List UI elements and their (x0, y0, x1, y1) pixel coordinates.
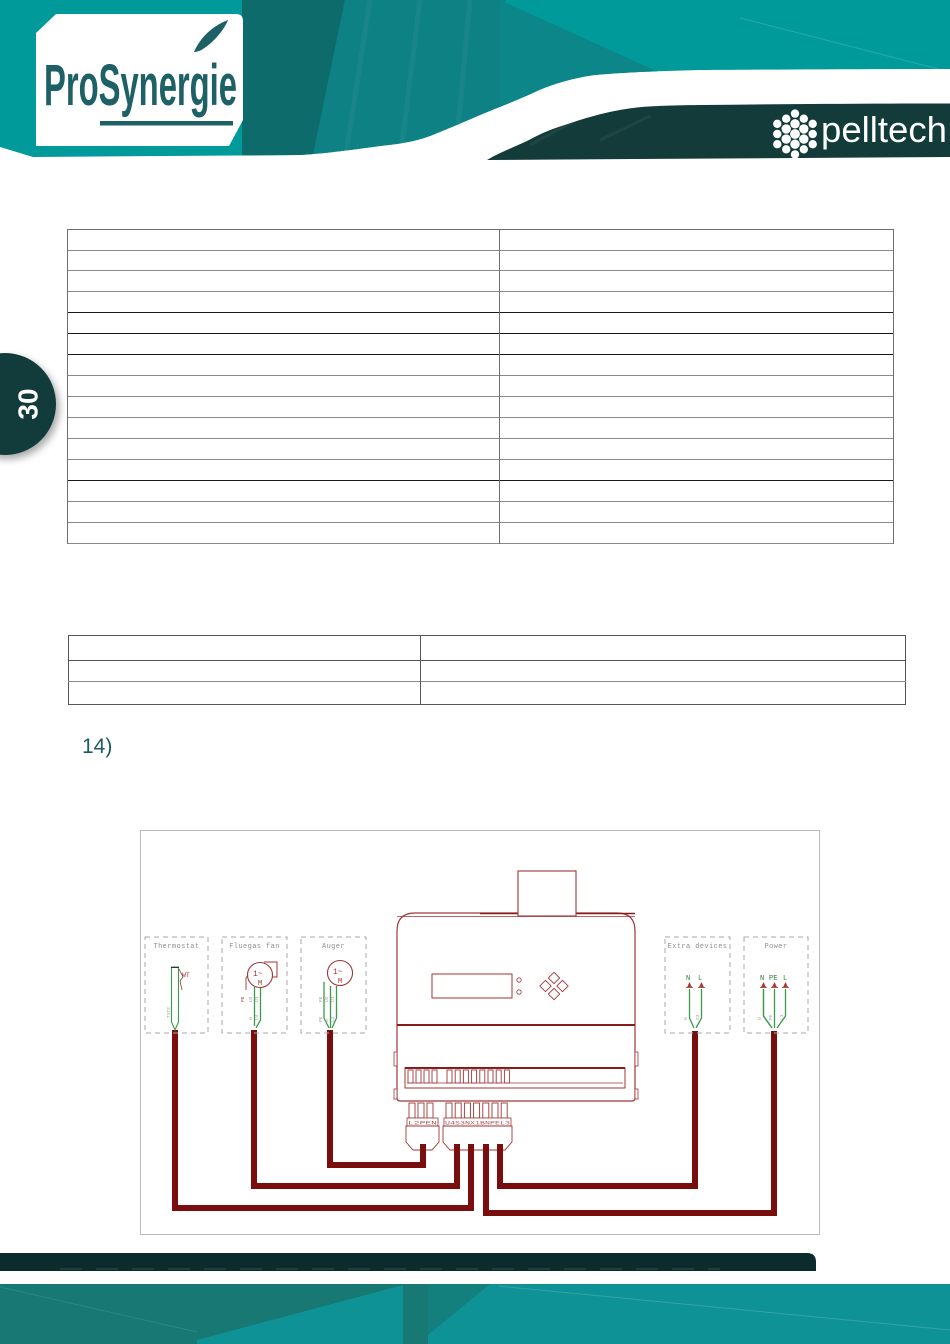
svg-text:30: 30 (13, 388, 44, 419)
svg-text:N: N (686, 975, 690, 983)
svg-text:PE: PE (769, 975, 777, 983)
svg-text:T1T2: T1T2 (166, 1007, 172, 1018)
svg-text:Extra devices: Extra devices (668, 943, 728, 951)
svg-text:U2: U2 (324, 996, 330, 1002)
svg-text:PE: PE (768, 1014, 774, 1020)
svg-text:WT: WT (182, 972, 190, 979)
svg-text:PE: PE (318, 1016, 324, 1022)
svg-text:N: N (248, 1017, 254, 1020)
svg-text:L: L (783, 975, 787, 983)
svg-text:Auger: Auger (322, 943, 345, 951)
svg-text:L1: L1 (779, 1014, 785, 1020)
svg-text:1~: 1~ (253, 970, 263, 979)
svg-text:L: L (698, 975, 702, 983)
svg-text:M: M (258, 980, 262, 988)
svg-text:M: M (338, 978, 342, 986)
svg-text:N: N (683, 1017, 689, 1020)
svg-text:S3: S3 (695, 1014, 701, 1020)
svg-text:L2PEN: L2PEN (408, 1120, 437, 1127)
svg-text:PE: PE (318, 996, 324, 1002)
svg-text:U1: U1 (330, 996, 336, 1002)
svg-text:U2: U2 (248, 996, 254, 1002)
svg-text:ProSynergie: ProSynergie (44, 53, 237, 118)
svg-text:U4S3NX1BNPEL3: U4S3NX1BNPEL3 (445, 1120, 510, 1127)
svg-text:N: N (760, 975, 764, 983)
svg-text:PE: PE (240, 996, 246, 1002)
svg-text:Thermostat: Thermostat (153, 943, 199, 951)
svg-text:Power: Power (764, 943, 787, 951)
svg-text:1~: 1~ (333, 968, 343, 977)
svg-text:N: N (324, 1019, 330, 1022)
svg-text:L3: L3 (330, 1016, 336, 1022)
svg-text:N: N (757, 1017, 763, 1020)
svg-text:pelltech: pelltech (821, 109, 947, 150)
svg-text:U1: U1 (254, 996, 260, 1002)
svg-text:U4: U4 (254, 1014, 260, 1020)
svg-text:Fluegas fan: Fluegas fan (229, 943, 280, 951)
